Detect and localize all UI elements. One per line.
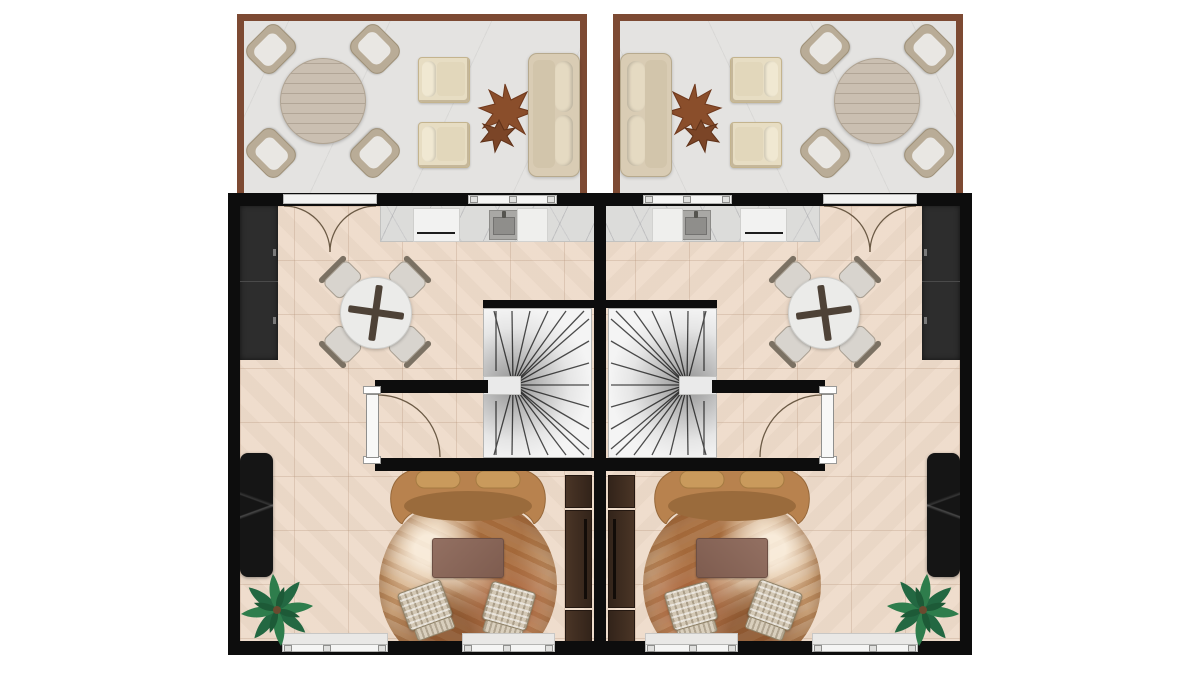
unit-right (600, 193, 972, 655)
sofa-seat (645, 60, 667, 168)
cabinet-door (608, 510, 635, 608)
table-cross-base (784, 273, 863, 352)
terrace-left (237, 14, 587, 193)
appliance-edge (417, 232, 455, 234)
outdoor-dining-chair (242, 20, 300, 78)
armchair-seat (437, 127, 465, 161)
cabinet-handle (613, 519, 616, 599)
faucet-icon (502, 211, 506, 218)
winder-staircase (483, 308, 592, 458)
kitchen-window (643, 195, 732, 204)
wardrobe-cabinet (240, 205, 278, 360)
refrigerator (413, 208, 460, 242)
floor-plan-canvas (0, 0, 1200, 675)
sofa-back-cushion (627, 115, 645, 166)
window-mullion (645, 196, 653, 203)
outdoor-dining-table (834, 58, 920, 144)
cabinet-divider (240, 281, 278, 282)
wall-hall-lower (606, 458, 825, 471)
window-mullion (323, 645, 331, 652)
star-side-table (475, 82, 531, 154)
cabinet-drawer (565, 610, 592, 643)
wall-stair-top (606, 300, 717, 308)
window-mullion (683, 196, 691, 203)
kitchen-counter (606, 206, 820, 242)
outdoor-sofa (620, 53, 672, 177)
sofa-back-cushion (555, 115, 573, 166)
cabinet-door (565, 510, 592, 608)
kitchen-counter (380, 206, 594, 242)
window-mullion (869, 645, 877, 652)
terrace-frame-right (613, 14, 620, 193)
window-mullion (545, 645, 553, 652)
coffee-table (432, 538, 504, 578)
black-marble-console (240, 453, 273, 577)
star-side-table (669, 82, 725, 154)
chair-cushion (911, 31, 949, 69)
terrace-right (613, 14, 963, 193)
cabinet-handle (273, 317, 276, 324)
dining-set (755, 242, 895, 382)
window-mullion (464, 645, 472, 652)
window-mullion (503, 645, 511, 652)
stair-landing (483, 376, 521, 395)
unit-left (228, 193, 600, 655)
black-marble-console (927, 453, 960, 577)
outdoor-dining-chair (242, 124, 300, 182)
palm-plant (235, 568, 319, 652)
chair-cushion (251, 31, 289, 69)
cooktop-module (517, 208, 548, 242)
cooktop-module (652, 208, 683, 242)
terrace-frame-left (237, 14, 244, 193)
living-room-window (645, 644, 738, 652)
round-dining-table (788, 277, 860, 349)
armchair-seat (735, 62, 763, 96)
outdoor-dining-chair (900, 20, 958, 78)
door-jamb (363, 386, 381, 394)
outdoor-armchair (418, 122, 470, 168)
wall-hall-upper (712, 380, 825, 393)
terrace-frame-top (613, 14, 963, 21)
sink-basin (493, 217, 515, 235)
french-door-threshold (823, 194, 917, 204)
outdoor-dining-chair (796, 124, 854, 182)
cabinet-handle (273, 249, 276, 256)
terrace-frame-right (580, 14, 587, 193)
outdoor-armchair (418, 57, 470, 103)
kitchen-window (468, 195, 557, 204)
outdoor-dining-set (247, 25, 397, 175)
media-cabinet (565, 475, 592, 643)
armchair-seat (437, 62, 465, 96)
cabinet-handle (924, 249, 927, 256)
dining-set (305, 242, 445, 382)
wardrobe-cabinet (922, 205, 960, 360)
cabinet-divider (922, 281, 960, 282)
faucet-icon (694, 211, 698, 218)
sofa-seat (533, 60, 555, 168)
window-mullion (470, 196, 478, 203)
wall-party-center (600, 193, 606, 655)
winder-staircase (608, 308, 717, 458)
media-cabinet (608, 475, 635, 643)
outdoor-dining-chair (346, 20, 404, 78)
cabinet-handle (584, 519, 587, 599)
armchair-back-cushion (422, 61, 436, 97)
french-door-swing-arcs (823, 206, 917, 253)
terrace-frame-top (237, 14, 587, 21)
wall-hall-upper (375, 380, 488, 393)
chair-cushion (807, 29, 845, 67)
armchair-back-cushion (764, 126, 778, 162)
outdoor-dining-table (280, 58, 366, 144)
door-swing-arc (377, 394, 441, 458)
cabinet-handle (924, 317, 927, 324)
outdoor-sofa (528, 53, 580, 177)
armchair-back-cushion (422, 126, 436, 162)
cabinet-drawer (608, 475, 635, 508)
palm-plant (881, 568, 965, 652)
outdoor-dining-set (803, 25, 953, 175)
sofa-back-cushion (627, 61, 645, 112)
table-cross-base (336, 273, 415, 352)
wall-party-center (594, 193, 600, 655)
refrigerator (740, 208, 787, 242)
living-room-window (462, 644, 555, 652)
outdoor-armchair (730, 122, 782, 168)
armchair-back-cushion (764, 61, 778, 97)
window-mullion (728, 645, 736, 652)
door-swing-arc (759, 394, 823, 458)
outdoor-dining-chair (796, 20, 854, 78)
appliance-edge (745, 232, 783, 234)
terrace-frame-left (956, 14, 963, 193)
chair-cushion (805, 133, 843, 171)
cabinet-drawer (565, 475, 592, 508)
coffee-table (696, 538, 768, 578)
door-jamb (819, 386, 837, 394)
window-mullion (547, 196, 555, 203)
outdoor-dining-chair (900, 124, 958, 182)
french-door-threshold (283, 194, 377, 204)
armchair-seat (735, 127, 763, 161)
kitchen-sink (681, 210, 711, 240)
round-dining-table (340, 277, 412, 349)
window-mullion (378, 645, 386, 652)
sink-basin (685, 217, 707, 235)
kitchen-sink (489, 210, 519, 240)
chair-cushion (909, 135, 947, 173)
curved-leather-sofa (388, 466, 548, 524)
window-mullion (509, 196, 517, 203)
window-mullion (722, 196, 730, 203)
cabinet-drawer (608, 610, 635, 643)
window-mullion (647, 645, 655, 652)
curved-leather-sofa (652, 466, 812, 524)
chair-cushion (355, 29, 393, 67)
window-mullion (814, 645, 822, 652)
french-door-swing-arcs (283, 206, 377, 253)
chair-cushion (253, 135, 291, 173)
chair-cushion (357, 133, 395, 171)
wall-stair-top (483, 300, 594, 308)
outdoor-dining-chair (346, 124, 404, 182)
window-mullion (689, 645, 697, 652)
outdoor-armchair (730, 57, 782, 103)
sofa-back-cushion (555, 61, 573, 112)
wall-hall-lower (375, 458, 594, 471)
